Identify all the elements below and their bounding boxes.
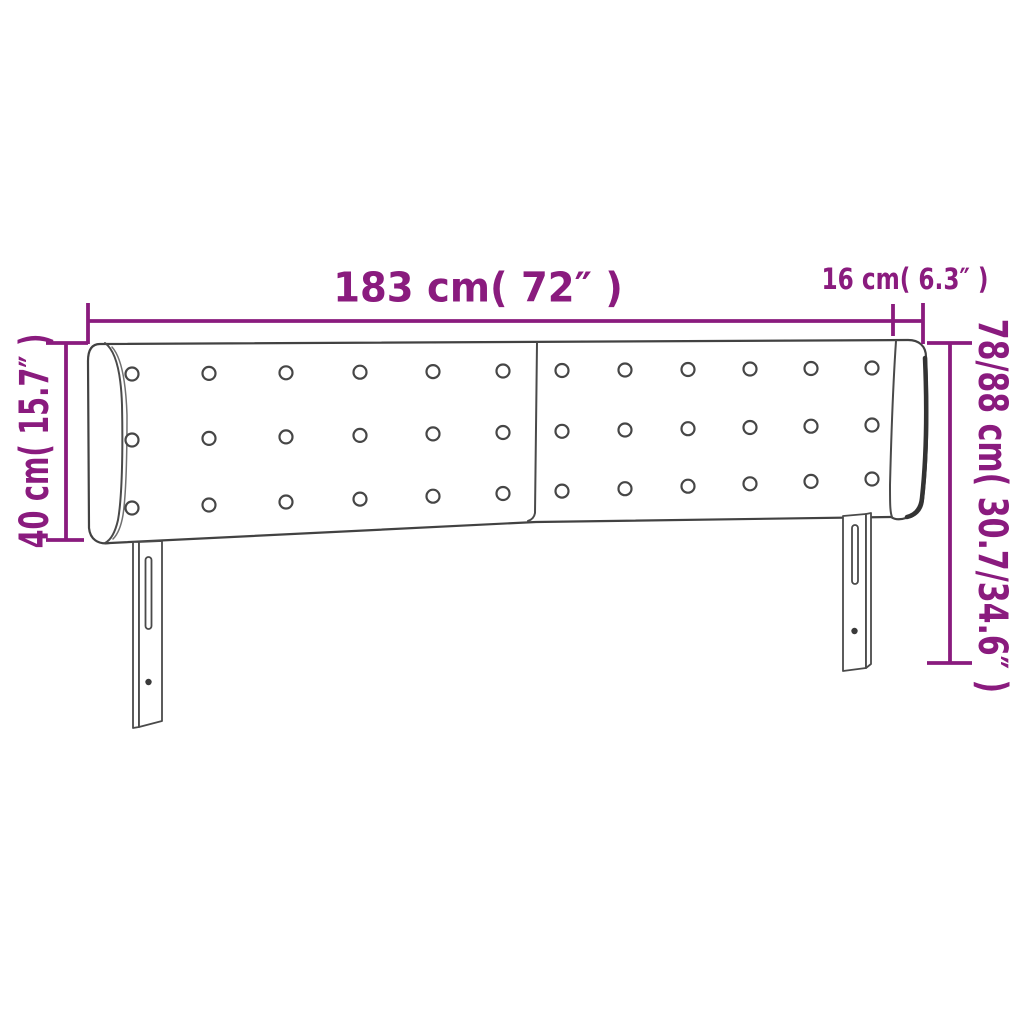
tufting-button (619, 364, 632, 377)
right-leg-slot (852, 525, 858, 584)
tufting-button (280, 430, 293, 443)
tufting-button (556, 485, 569, 498)
right-leg (843, 513, 871, 671)
tufting-button (354, 366, 367, 379)
left-leg-slot (146, 557, 152, 629)
tufting-button (427, 490, 440, 503)
tufting-button (619, 482, 632, 495)
right-leg-screw (851, 628, 857, 634)
tufting-button (427, 427, 440, 440)
tufting-button (354, 493, 367, 506)
tufting-button (805, 475, 818, 488)
tufting-button (203, 499, 216, 512)
panel-height-label: 40 cm( 15.7″ ) (12, 334, 59, 549)
total-height-label: 78/88 cm( 30.7/34.6″ ) (969, 319, 1015, 694)
tufting-button (280, 366, 293, 379)
tufting-button (497, 365, 510, 378)
tufting-button (354, 429, 367, 442)
width-label: 183 cm( 72″ ) (333, 264, 623, 311)
tufting-button (556, 364, 569, 377)
tufting-button (866, 419, 879, 432)
tufting-button (126, 368, 139, 381)
tufting-button (744, 421, 757, 434)
tufting-button (280, 496, 293, 509)
tufting-button (497, 487, 510, 500)
tufting-button (866, 362, 879, 375)
left-leg-screw (145, 679, 151, 685)
tufting-button (682, 480, 695, 493)
tufting-button (744, 477, 757, 490)
tufting-button (427, 365, 440, 378)
headboard-dimension-diagram: 183 cm( 72″ ) 16 cm( 6.3″ ) 40 cm( 15.7″… (0, 0, 1024, 1024)
tufting-button (497, 426, 510, 439)
tufting-button (203, 367, 216, 380)
tufting-button (126, 434, 139, 447)
diagram-canvas: 183 cm( 72″ ) 16 cm( 6.3″ ) 40 cm( 15.7″… (0, 0, 1024, 1024)
ear-depth-label: 16 cm( 6.3″ ) (821, 264, 988, 297)
tufting-button (619, 424, 632, 437)
tufting-button (126, 502, 139, 515)
headboard-drawing (88, 340, 927, 728)
tufting-button (682, 363, 695, 376)
tufting-button (203, 432, 216, 445)
tufting-button (866, 473, 879, 486)
tufting-button (805, 420, 818, 433)
tufting-button (744, 363, 757, 376)
right-leg-side-face (866, 513, 871, 668)
tufting-button (682, 422, 695, 435)
left-leg (133, 541, 162, 728)
tufting-button (556, 425, 569, 438)
tufting-button (805, 362, 818, 375)
